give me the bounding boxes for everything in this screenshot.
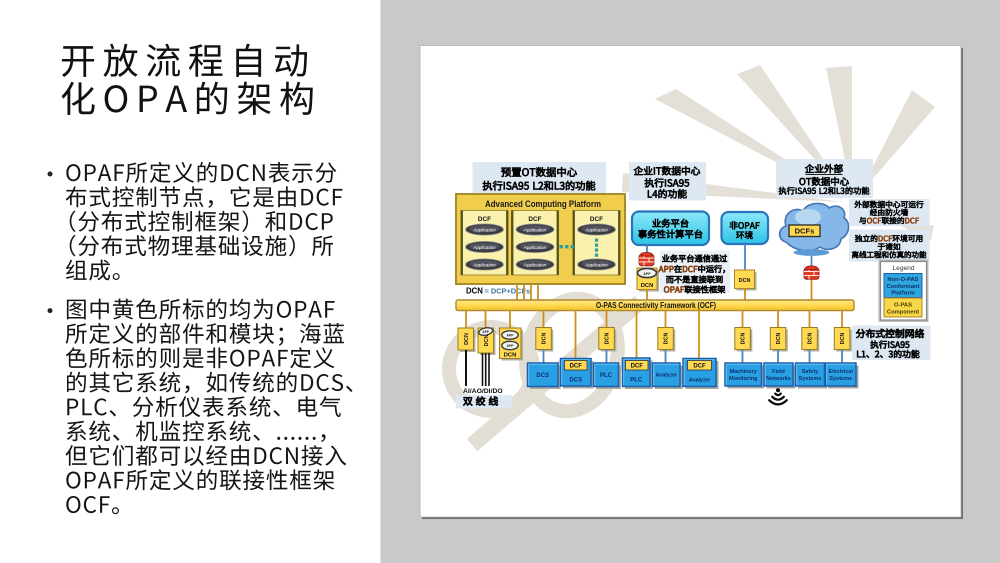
- svg-text:APP: APP: [507, 344, 515, 348]
- svg-text:DCN: DCN: [776, 333, 782, 345]
- svg-text:O-PAS: O-PAS: [894, 303, 912, 309]
- svg-text:DCN: DCN: [739, 278, 751, 284]
- svg-text:DCN: DCN: [504, 353, 517, 359]
- svg-text:Application: Application: [523, 245, 547, 250]
- svg-text:DCN: DCN: [641, 283, 654, 289]
- svg-text:Analyzer: Analyzer: [689, 378, 711, 384]
- svg-text:APP: APP: [643, 272, 651, 276]
- svg-text:DCS: DCS: [569, 378, 582, 384]
- svg-text:DCN: DCN: [840, 333, 846, 345]
- svg-text:Application: Application: [523, 262, 547, 267]
- svg-text:Component: Component: [887, 310, 919, 316]
- svg-text:Systems: Systems: [829, 376, 852, 382]
- svg-text:DCF: DCF: [590, 216, 603, 223]
- svg-text:Machinery: Machinery: [730, 369, 758, 375]
- svg-text:Legend: Legend: [892, 265, 914, 272]
- svg-text:PLC: PLC: [600, 373, 613, 379]
- svg-text:Platform: Platform: [891, 291, 915, 297]
- svg-text:O-PAS Connectivity Framework (: O-PAS Connectivity Framework (OCF): [596, 301, 716, 310]
- svg-text:Conformant: Conformant: [887, 284, 920, 290]
- svg-text:DCN: DCN: [808, 333, 814, 345]
- svg-text:DCN: DCN: [542, 333, 548, 345]
- svg-text:Application: Application: [472, 245, 496, 250]
- svg-text:Application: Application: [472, 227, 496, 232]
- svg-text:DCF: DCF: [478, 216, 491, 223]
- svg-text:Application: Application: [523, 227, 547, 232]
- svg-text:Field: Field: [772, 369, 785, 375]
- svg-text:DCN: DCN: [464, 333, 470, 345]
- svg-text:DCN: DCN: [741, 333, 747, 345]
- svg-text:DCN: DCN: [484, 335, 490, 347]
- svg-text:DCN: DCN: [466, 287, 483, 296]
- svg-text:DCF: DCF: [528, 216, 541, 223]
- svg-text:Application: Application: [472, 262, 496, 267]
- svg-text:Analyzer: Analyzer: [655, 373, 677, 379]
- svg-text:AI/AO/DI/DO: AI/AO/DI/DO: [463, 388, 503, 395]
- svg-text:Application: Application: [584, 262, 608, 267]
- svg-text:DCS: DCS: [536, 373, 549, 379]
- svg-text:DCF: DCF: [693, 364, 706, 370]
- svg-text:APP: APP: [507, 334, 515, 338]
- svg-text:DCF: DCF: [631, 364, 644, 370]
- svg-text:DCN: DCN: [664, 333, 670, 345]
- svg-text:DCF: DCF: [570, 364, 583, 370]
- svg-text:Advanced Computing Platform: Advanced Computing Platform: [485, 199, 601, 209]
- svg-text:Safety: Safety: [802, 369, 819, 375]
- svg-text:Networks: Networks: [766, 376, 791, 382]
- svg-text:DCFs: DCFs: [795, 227, 815, 236]
- svg-text:APP: APP: [482, 330, 489, 334]
- svg-text:Systems: Systems: [799, 376, 822, 382]
- svg-text:DCN: DCN: [605, 333, 611, 345]
- svg-text:Application: Application: [584, 227, 608, 232]
- svg-text:Non-O-PAS: Non-O-PAS: [887, 277, 918, 283]
- svg-text:Electrical: Electrical: [829, 369, 854, 375]
- svg-text:PLC: PLC: [630, 378, 643, 384]
- svg-text:Monitoring: Monitoring: [729, 376, 757, 382]
